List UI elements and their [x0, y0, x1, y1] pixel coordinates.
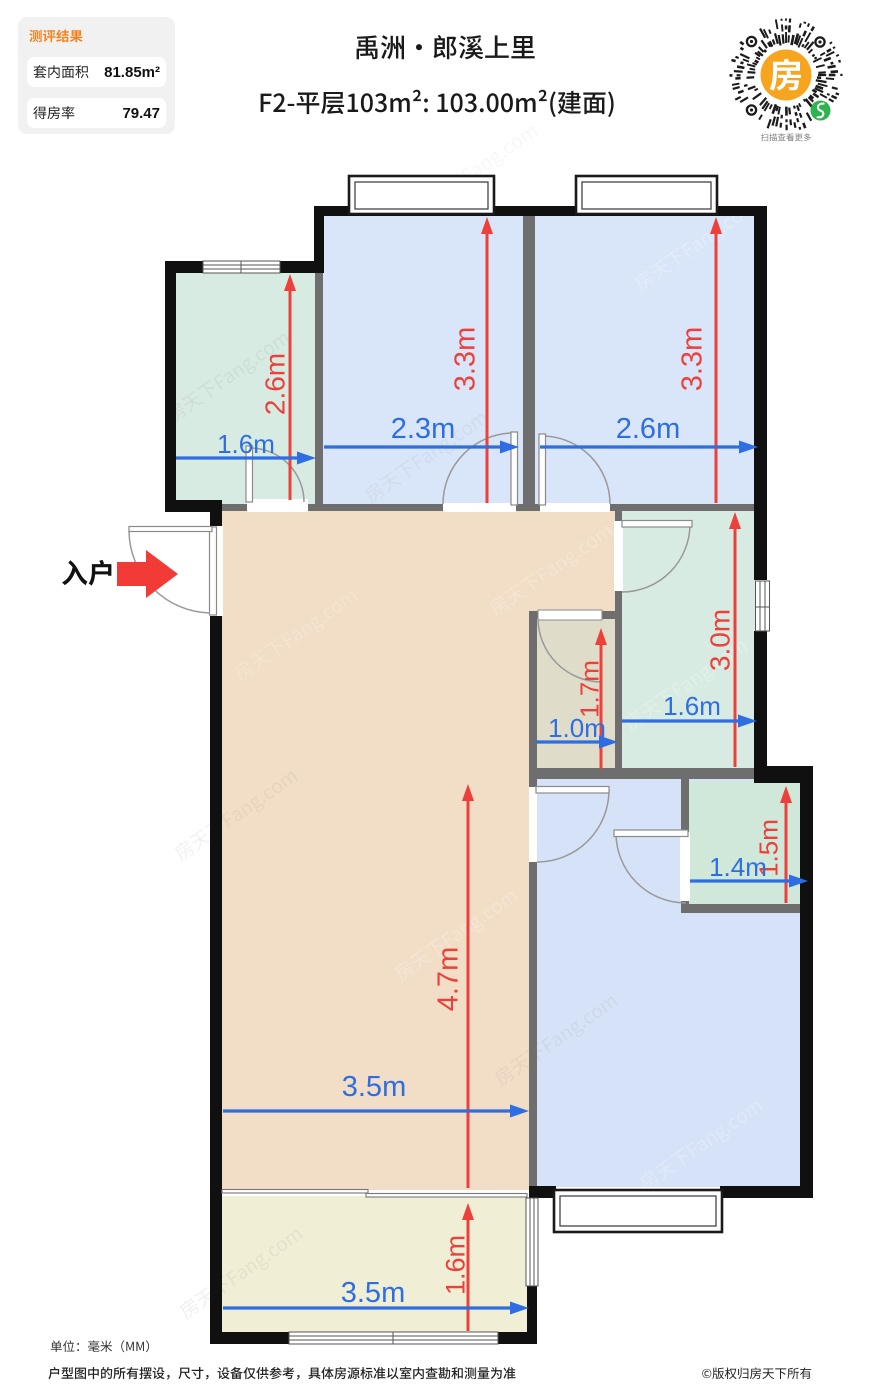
svg-text:3.5m: 3.5m: [341, 1277, 405, 1309]
svg-text:3.5m: 3.5m: [342, 1071, 406, 1103]
svg-text:1.0m: 1.0m: [548, 713, 606, 743]
svg-text:3.3m: 3.3m: [450, 327, 482, 391]
svg-text:3.0m: 3.0m: [705, 609, 736, 671]
svg-text:1.4m: 1.4m: [709, 852, 767, 882]
svg-text:79.47: 79.47: [122, 105, 160, 122]
svg-text:1.7m: 1.7m: [575, 660, 605, 718]
svg-text:81.85m²: 81.85m²: [104, 64, 160, 81]
svg-text:1.6m: 1.6m: [663, 691, 721, 721]
svg-text:3.3m: 3.3m: [677, 327, 709, 391]
svg-text:1.6m: 1.6m: [441, 1235, 471, 1295]
svg-text:4.7m: 4.7m: [433, 947, 465, 1011]
svg-text:2.6m: 2.6m: [260, 353, 291, 415]
svg-text:2.6m: 2.6m: [616, 413, 680, 445]
svg-text:1.6m: 1.6m: [217, 429, 275, 459]
svg-text:2.3m: 2.3m: [391, 413, 455, 445]
